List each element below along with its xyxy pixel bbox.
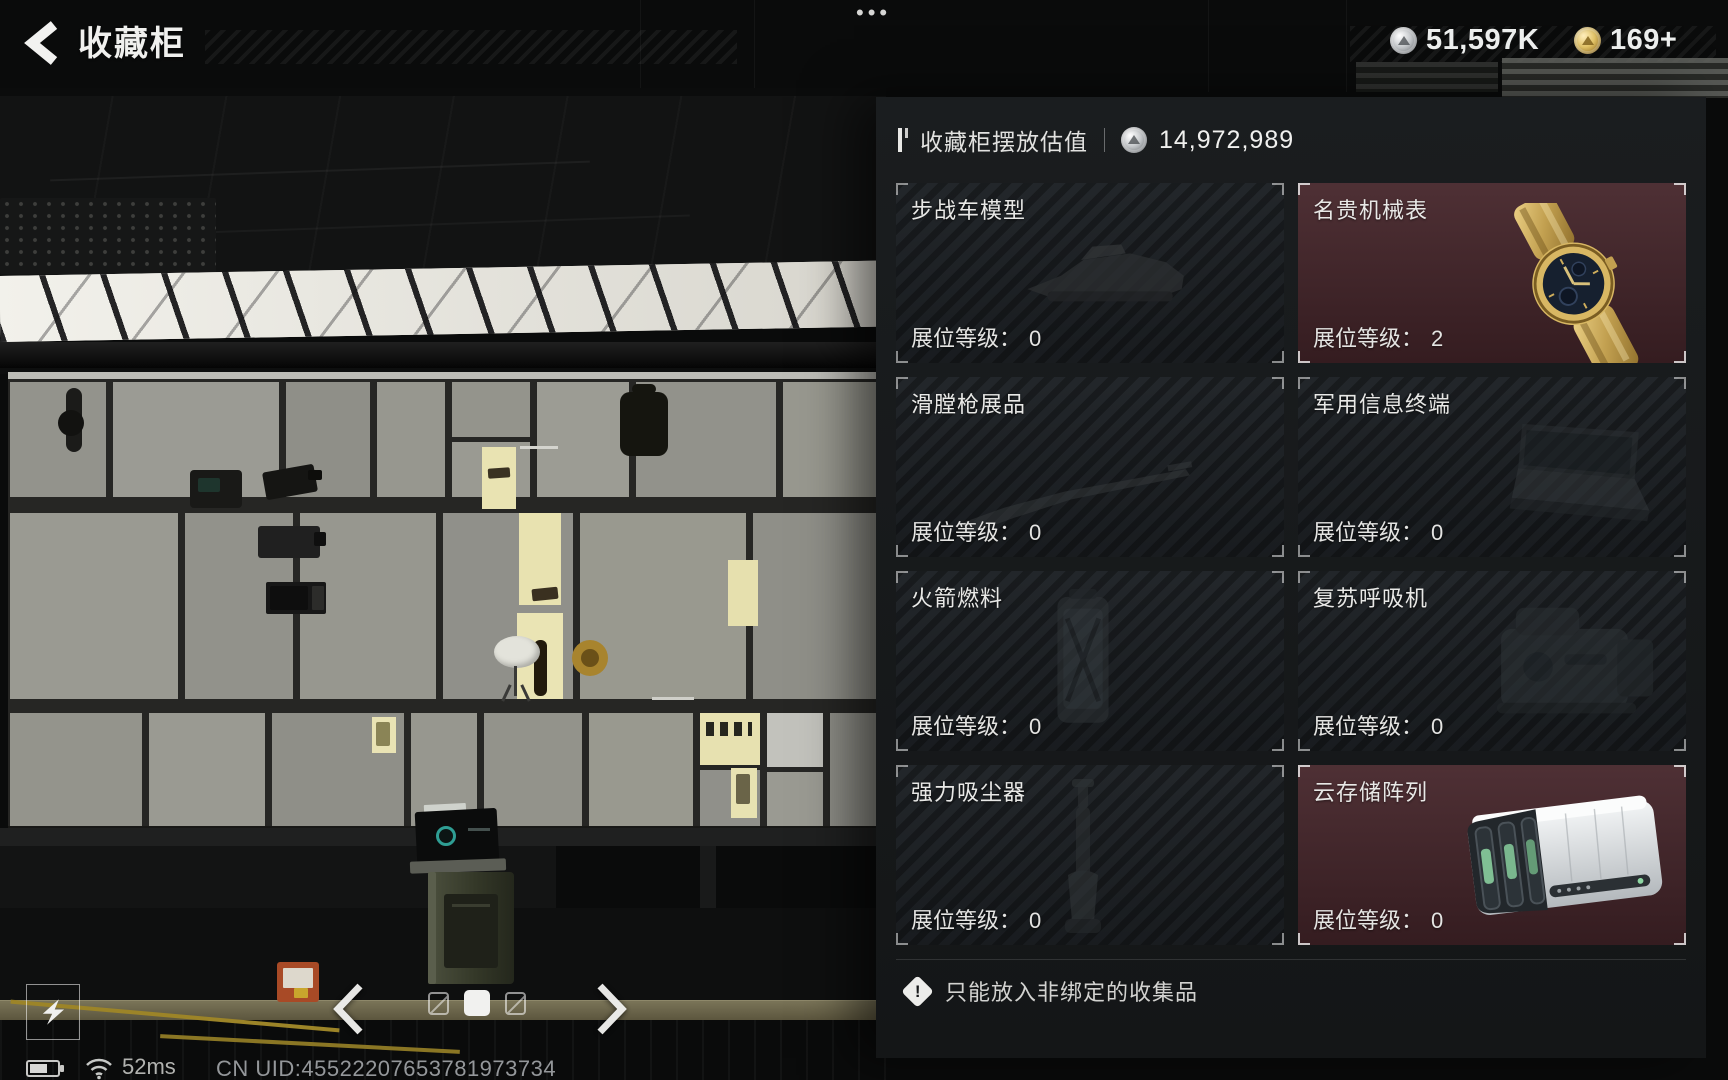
scene-decor — [580, 513, 746, 699]
valuation-header: 收藏柜摆放估值 14,972,989 — [876, 97, 1706, 183]
scene-decor — [10, 713, 142, 826]
rocket-fuel-icon — [1024, 587, 1142, 735]
card-item-name: 云存储阵列 — [1313, 775, 1428, 807]
swap-view-icon — [36, 994, 70, 1030]
next-arrow-button[interactable] — [592, 982, 630, 1036]
collection-grid: 步战车模型展位等级：0名贵机械表展位等级：2滑膛枪展品展位等级：0军用信息终端展… — [896, 183, 1686, 945]
gold-watch-icon — [1478, 203, 1670, 363]
card-corner — [1674, 933, 1686, 945]
card-corner — [1298, 765, 1310, 777]
scene-decor — [452, 904, 490, 907]
collection-card[interactable]: 火箭燃料展位等级：0 — [896, 571, 1284, 751]
scene-decor — [652, 697, 694, 700]
scene-decor — [415, 808, 500, 866]
scene-decor — [514, 666, 517, 696]
scene-decor — [488, 467, 511, 479]
warning-text: 只能放入非绑定的收集品 — [945, 975, 1198, 1007]
game-screen: 收藏柜 ••• 51,597K 169+ 收藏柜摆放估值 14,972,989 … — [0, 0, 1728, 1080]
card-corner — [1298, 351, 1310, 363]
silver-coin-icon — [1121, 127, 1147, 153]
card-booth-level: 展位等级：2 — [1313, 321, 1443, 353]
warning-row: ! 只能放入非绑定的收集品 — [906, 975, 1198, 1007]
currency-silver[interactable]: 51,597K — [1390, 24, 1539, 57]
card-corner — [896, 933, 908, 945]
collection-card[interactable]: 复苏呼吸机展位等级：0 — [1298, 571, 1686, 751]
scene-decor — [0, 261, 886, 342]
scene-decor — [452, 382, 530, 437]
card-corner — [1272, 545, 1284, 557]
scene-decor — [494, 636, 540, 668]
card-booth-level: 展位等级：0 — [911, 321, 1041, 353]
scene-decor — [312, 586, 324, 610]
card-corner — [896, 739, 908, 751]
page-indicator — [428, 988, 526, 1018]
scene-decor — [314, 532, 326, 546]
scene-decor — [258, 526, 320, 558]
scene-decor — [0, 88, 886, 96]
cloud-storage-icon — [1444, 789, 1678, 926]
scene-decor — [783, 382, 880, 497]
scene-decor — [830, 713, 880, 826]
card-corner — [1674, 571, 1686, 583]
scene-decor — [0, 198, 216, 274]
card-corner — [896, 377, 908, 389]
ifv-model-icon — [1014, 231, 1204, 320]
scene-decor — [376, 722, 390, 746]
scene-decor — [767, 772, 823, 826]
card-corner — [1298, 377, 1310, 389]
card-booth-level: 展位等级：0 — [911, 709, 1041, 741]
scene-decor — [10, 513, 178, 699]
card-corner — [1272, 765, 1284, 777]
card-item-name: 步战车模型 — [911, 193, 1026, 225]
card-item-name: 复苏呼吸机 — [1313, 581, 1428, 613]
currency-value: 169+ — [1610, 24, 1677, 57]
scene-decor — [589, 713, 693, 826]
back-button[interactable] — [22, 20, 64, 66]
back-chevron-icon — [22, 20, 64, 66]
card-corner — [1272, 351, 1284, 363]
scene-decor — [308, 470, 322, 480]
card-booth-level: 展位等级：0 — [1313, 709, 1443, 741]
scene-decor — [753, 513, 880, 699]
card-booth-level: 展位等级：0 — [911, 515, 1041, 547]
card-corner — [1674, 739, 1686, 751]
scene-decor — [1502, 58, 1728, 98]
menu-dots-button[interactable]: ••• — [856, 0, 891, 26]
card-corner — [1674, 351, 1686, 363]
panel-divider — [896, 959, 1686, 960]
card-corner — [1272, 183, 1284, 195]
card-corner — [1298, 183, 1310, 195]
scene-decor — [428, 872, 436, 984]
header-accent-bars — [898, 128, 908, 152]
card-corner — [896, 545, 908, 557]
valuation-label: 收藏柜摆放估值 — [920, 123, 1088, 157]
card-item-name: 火箭燃料 — [911, 581, 1003, 613]
card-booth-level: 展位等级：0 — [1313, 515, 1443, 547]
alert-diamond-icon: ! — [901, 975, 934, 1008]
scene-decor — [10, 382, 106, 497]
page-title: 收藏柜 — [78, 16, 186, 65]
card-corner — [896, 351, 908, 363]
scene-decor — [581, 649, 599, 667]
valuation-value: 14,972,989 — [1159, 126, 1294, 155]
scene-decor — [198, 478, 220, 492]
card-corner — [1674, 545, 1686, 557]
card-corner — [1272, 933, 1284, 945]
scene-decor — [205, 30, 737, 64]
scene-decor — [270, 586, 308, 610]
scene-decor — [537, 382, 629, 497]
scene-decor — [58, 410, 84, 436]
card-booth-level: 展位等级：0 — [911, 903, 1041, 935]
card-corner — [1272, 739, 1284, 751]
military-terminal-icon — [1480, 409, 1660, 536]
scene-decor — [728, 560, 758, 626]
card-corner — [896, 571, 908, 583]
card-item-name: 军用信息终端 — [1313, 387, 1451, 419]
collection-card[interactable]: 名贵机械表展位等级：2 — [1298, 183, 1686, 363]
scene-decor — [520, 446, 558, 449]
gold-coin-icon — [1574, 27, 1601, 54]
page-square[interactable] — [505, 992, 526, 1015]
vacuum-icon — [1038, 775, 1128, 945]
scene-decor — [468, 828, 490, 831]
card-corner — [896, 765, 908, 777]
scene-decor — [1208, 0, 1209, 92]
card-corner — [1674, 183, 1686, 195]
swap-view-button[interactable] — [26, 984, 80, 1040]
card-item-name: 强力吸尘器 — [911, 775, 1026, 807]
card-booth-level: 展位等级：0 — [1313, 903, 1443, 935]
silver-coin-icon — [1390, 27, 1417, 54]
card-corner — [1298, 739, 1310, 751]
currency-gold[interactable]: 169+ — [1574, 24, 1677, 57]
card-corner — [1298, 545, 1310, 557]
collection-panel: 收藏柜摆放估值 14,972,989 步战车模型展位等级：0名贵机械表展位等级：… — [876, 97, 1706, 1058]
scene-decor — [484, 713, 582, 826]
card-corner — [1298, 571, 1310, 583]
scene-decor — [377, 382, 445, 497]
card-item-name: 滑膛枪展品 — [911, 387, 1026, 419]
card-corner — [1272, 377, 1284, 389]
scene-decor — [700, 713, 760, 765]
page-square[interactable] — [464, 990, 490, 1016]
collection-card[interactable]: 步战车模型展位等级：0 — [896, 183, 1284, 363]
collection-card[interactable]: 滑膛枪展品展位等级：0 — [896, 377, 1284, 557]
card-corner — [896, 183, 908, 195]
scene-decor — [8, 372, 880, 379]
page-square[interactable] — [428, 992, 449, 1015]
scene-decor — [620, 392, 668, 456]
scene-decor — [1346, 0, 1347, 92]
card-corner — [1272, 571, 1284, 583]
scene-decor — [0, 342, 886, 368]
card-item-name: 名贵机械表 — [1313, 193, 1428, 225]
scene-decor — [436, 826, 456, 846]
card-corner — [1674, 765, 1686, 777]
scene-decor — [1356, 62, 1498, 92]
collection-card[interactable]: 军用信息终端展位等级：0 — [1298, 377, 1686, 557]
scene-decor — [736, 774, 750, 804]
prev-arrow-button[interactable] — [330, 982, 368, 1036]
currency-value: 51,597K — [1426, 24, 1539, 57]
collection-card[interactable]: 云存储阵列展位等级：0 — [1298, 765, 1686, 945]
scene-decor — [283, 968, 313, 988]
scene-decor — [149, 713, 265, 826]
header-divider — [1104, 128, 1105, 152]
collection-card[interactable]: 强力吸尘器展位等级：0 — [896, 765, 1284, 945]
ventilator-icon — [1480, 593, 1670, 730]
scene-decor — [294, 988, 308, 998]
scene-decor — [754, 0, 755, 92]
card-corner — [1298, 933, 1310, 945]
scene-decor — [767, 713, 823, 767]
scene-decor — [706, 722, 752, 736]
card-corner — [1674, 377, 1686, 389]
